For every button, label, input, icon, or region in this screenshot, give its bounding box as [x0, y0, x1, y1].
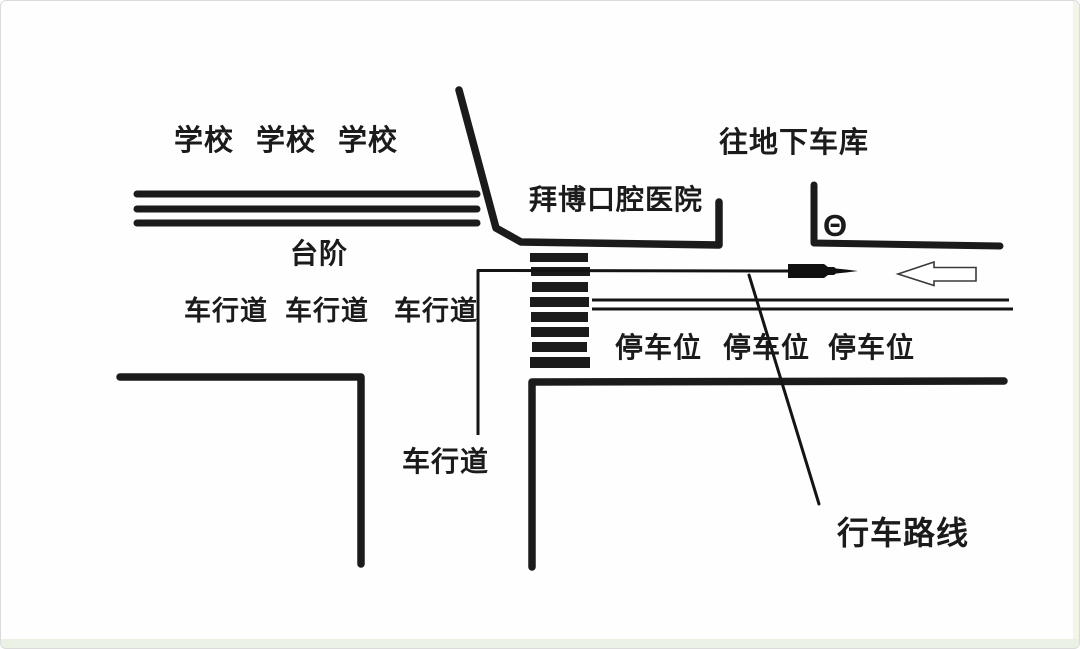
lower-roadway-label: 车行道 [402, 448, 489, 476]
steps-label: 台阶 [290, 240, 348, 268]
left-block-arrow-icon [898, 262, 976, 286]
hospital-frontage-outline [459, 90, 719, 245]
roadway-label-3: 车行道 [394, 298, 478, 325]
parking-lane-lines [592, 300, 1013, 309]
route-arrowhead-icon [788, 264, 858, 278]
steps-lines [137, 194, 477, 223]
hospital-label: 拜博口腔医院 [529, 186, 703, 214]
map-line-art [1, 1, 1080, 649]
garage-label: 往地下车库 [719, 129, 869, 158]
parking-label-2: 停车位 [723, 334, 810, 362]
school-label-1: 学校 [174, 127, 234, 156]
theta-garage-icon: Θ [823, 210, 847, 241]
route-map-canvas: 学校 学校 学校 台阶 车行道 车行道 车行道 拜博口腔医院 往地下车库 Θ 停… [0, 0, 1080, 649]
left-street-corner [120, 377, 361, 564]
route-label: 行车路线 [837, 517, 969, 549]
school-label-2: 学校 [256, 127, 316, 156]
roadway-label-1: 车行道 [184, 298, 268, 325]
school-label-3: 学校 [338, 127, 398, 156]
parking-label-1: 停车位 [615, 334, 702, 362]
parking-label-3: 停车位 [828, 334, 915, 362]
roadway-label-2: 车行道 [285, 298, 369, 325]
